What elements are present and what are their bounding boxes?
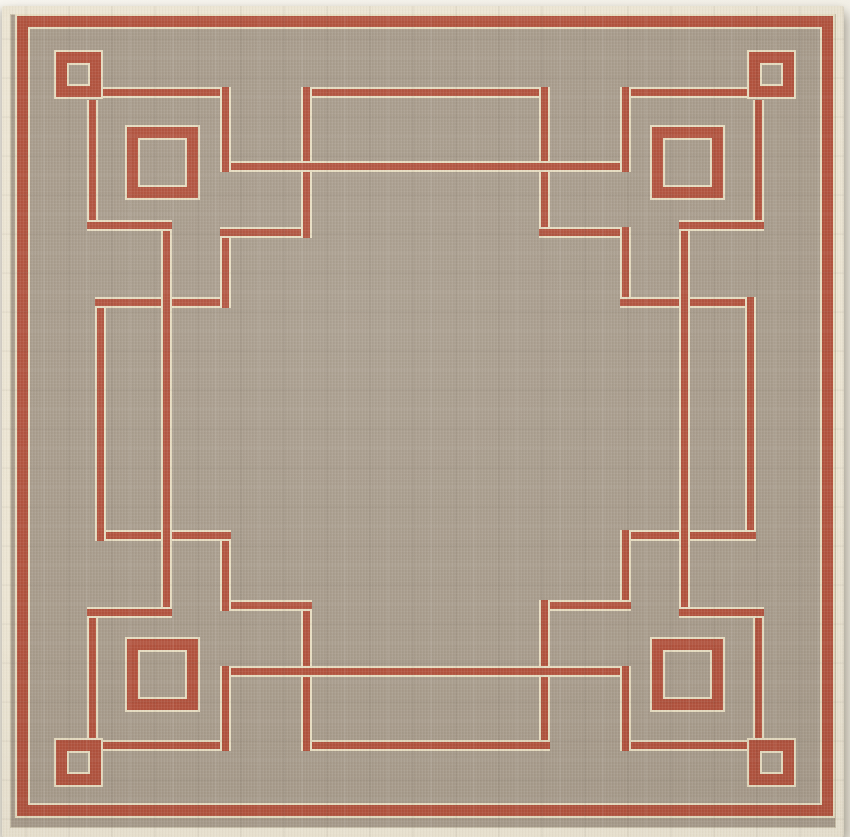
rug-pattern (0, 0, 850, 837)
rug-perimeter-stripe (17, 16, 833, 816)
rug-product-photo (0, 0, 850, 837)
